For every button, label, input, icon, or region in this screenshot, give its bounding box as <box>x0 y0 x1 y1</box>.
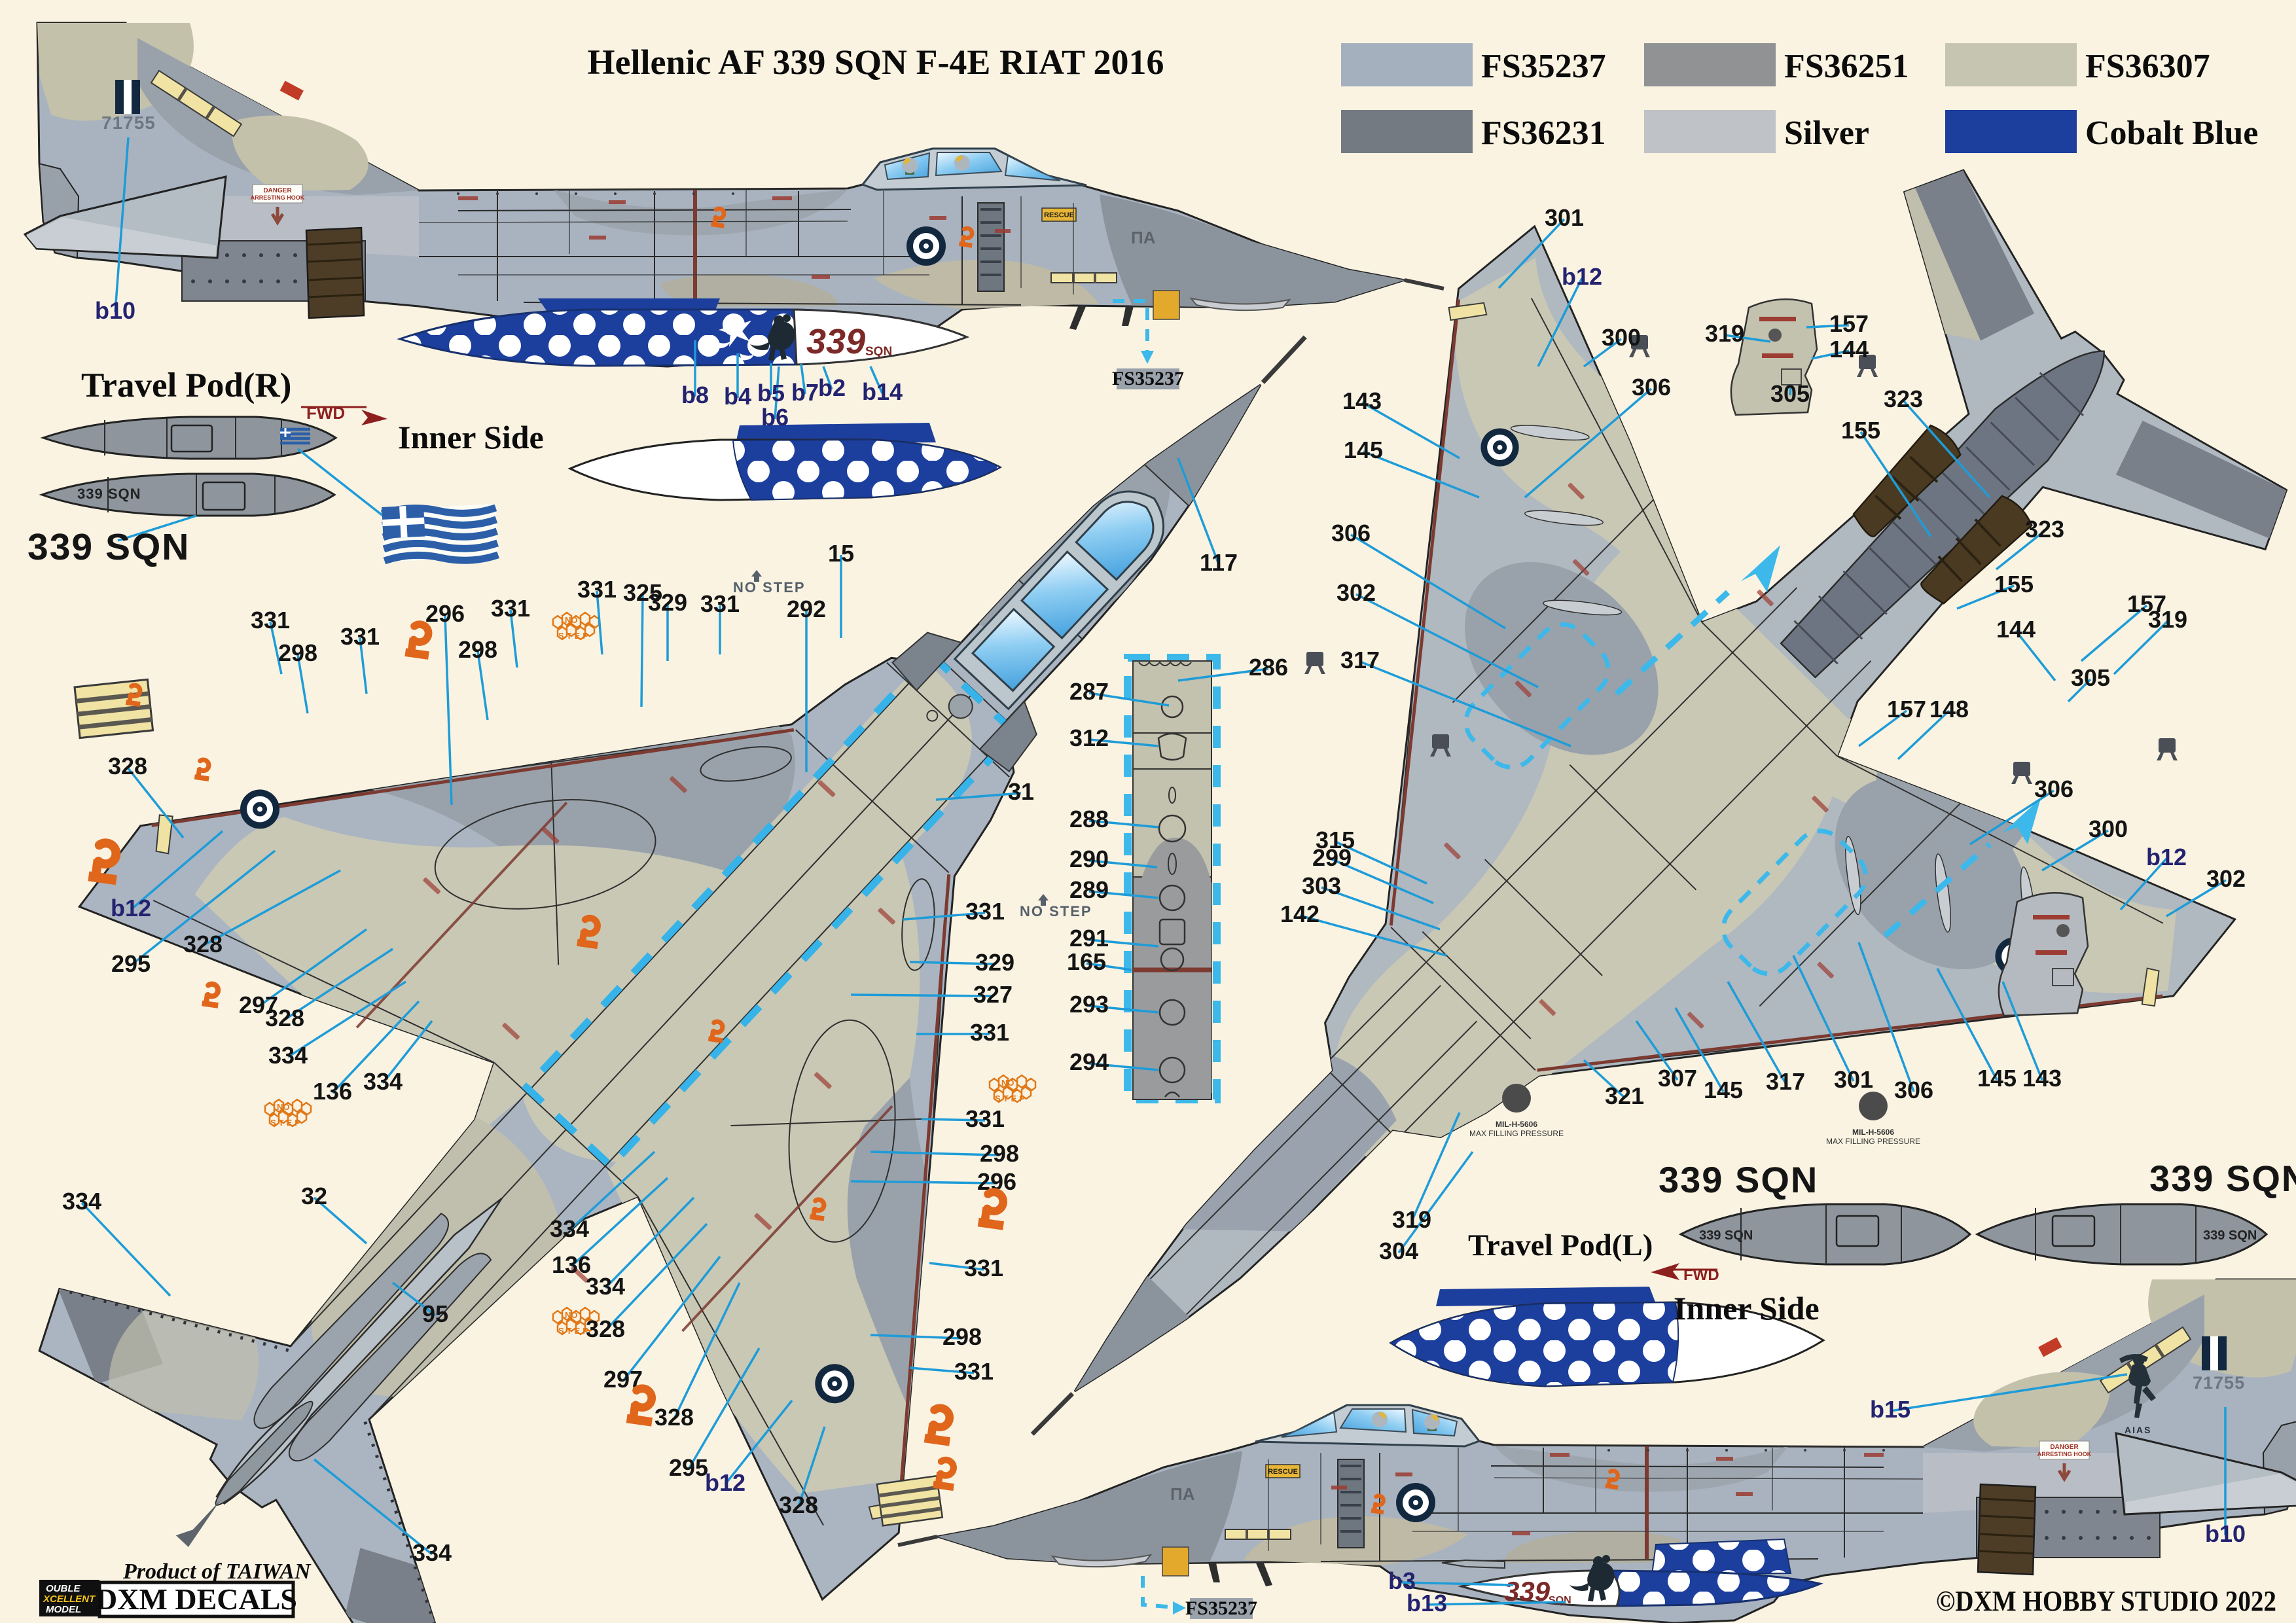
svg-text:295: 295 <box>111 950 151 977</box>
svg-text:334: 334 <box>586 1273 625 1300</box>
svg-text:165: 165 <box>1067 948 1106 975</box>
svg-text:334: 334 <box>412 1539 452 1566</box>
svg-text:328: 328 <box>586 1315 625 1342</box>
svg-text:FWD: FWD <box>1683 1266 1719 1284</box>
svg-text:301: 301 <box>1545 204 1584 231</box>
svg-text:Inner Side: Inner Side <box>1674 1290 1820 1327</box>
svg-text:328: 328 <box>108 753 147 779</box>
svg-text:287: 287 <box>1069 678 1109 705</box>
svg-text:298: 298 <box>942 1323 982 1350</box>
svg-text:328: 328 <box>779 1491 818 1518</box>
svg-text:306: 306 <box>1894 1077 1933 1103</box>
svg-text:MIL-H-5606: MIL-H-5606 <box>1852 1128 1894 1137</box>
svg-text:288: 288 <box>1069 806 1109 832</box>
svg-text:b10: b10 <box>2205 1520 2246 1547</box>
svg-text:DXM DECALS: DXM DECALS <box>96 1582 297 1616</box>
svg-text:331: 331 <box>577 576 617 603</box>
svg-text:71755: 71755 <box>101 113 156 133</box>
svg-text:334: 334 <box>363 1068 403 1095</box>
svg-text:ΠΑ: ΠΑ <box>1170 1484 1195 1504</box>
svg-text:FS36231: FS36231 <box>1481 115 1606 152</box>
svg-text:155: 155 <box>1841 417 1880 444</box>
svg-text:289: 289 <box>1069 876 1109 903</box>
svg-text:306: 306 <box>2034 776 2073 802</box>
svg-text:DANGER: DANGER <box>2050 1444 2079 1451</box>
svg-text:302: 302 <box>2206 865 2246 892</box>
svg-text:b8: b8 <box>681 382 709 408</box>
svg-text:157: 157 <box>1887 696 1926 722</box>
svg-text:312: 312 <box>1069 724 1109 751</box>
svg-text:300: 300 <box>1602 324 1641 351</box>
svg-text:FS35237: FS35237 <box>1112 368 1184 389</box>
svg-text:SQN: SQN <box>865 345 892 359</box>
svg-text:339 SQN: 339 SQN <box>27 526 190 568</box>
svg-text:157: 157 <box>1829 310 1869 337</box>
svg-text:339 SQN: 339 SQN <box>1699 1228 1753 1243</box>
svg-text:305: 305 <box>1770 380 1810 407</box>
svg-text:b2: b2 <box>818 374 846 401</box>
svg-text:OUBLE: OUBLE <box>46 1583 81 1594</box>
svg-text:307: 307 <box>1658 1065 1697 1092</box>
svg-text:RESCUE: RESCUE <box>1268 1468 1298 1476</box>
svg-text:294: 294 <box>1069 1048 1109 1075</box>
svg-text:317: 317 <box>1766 1068 1805 1095</box>
svg-text:Product of TAIWAN: Product of TAIWAN <box>122 1560 312 1584</box>
svg-text:Cobalt Blue: Cobalt Blue <box>2085 115 2258 152</box>
svg-text:b14: b14 <box>862 378 903 405</box>
svg-text:334: 334 <box>550 1215 589 1242</box>
svg-text:300: 300 <box>2089 815 2128 842</box>
svg-text:290: 290 <box>1069 846 1109 872</box>
svg-text:©DXM HOBBY STUDIO 2022: ©DXM HOBBY STUDIO 2022 <box>1936 1585 2276 1617</box>
svg-text:ΠΑ: ΠΑ <box>1131 228 1156 247</box>
svg-text:FS36307: FS36307 <box>2085 48 2210 85</box>
svg-text:MAX FILLING PRESSURE: MAX FILLING PRESSURE <box>1469 1129 1564 1138</box>
svg-text:XCELLENT: XCELLENT <box>43 1594 96 1605</box>
svg-text:331: 331 <box>965 1105 1005 1132</box>
svg-text:AIAS: AIAS <box>2125 1425 2151 1435</box>
svg-text:FS36251: FS36251 <box>1784 48 1909 85</box>
svg-text:331: 331 <box>970 1019 1009 1046</box>
svg-text:331: 331 <box>964 1255 1003 1281</box>
svg-text:b5: b5 <box>757 380 785 406</box>
svg-text:Hellenic AF 339 SQN F-4E RIAT: Hellenic AF 339 SQN F-4E RIAT 2016 <box>587 43 1164 82</box>
svg-text:NO STEP: NO STEP <box>1020 903 1092 919</box>
svg-text:15: 15 <box>828 540 854 567</box>
svg-text:298: 298 <box>980 1140 1019 1167</box>
svg-text:155: 155 <box>1994 571 2034 597</box>
svg-text:b6: b6 <box>761 404 789 431</box>
svg-text:303: 303 <box>1302 872 1341 899</box>
svg-text:317: 317 <box>1340 647 1380 673</box>
svg-text:144: 144 <box>1996 616 2036 643</box>
svg-text:b10: b10 <box>95 297 135 324</box>
svg-text:117: 117 <box>1200 549 1238 576</box>
svg-text:SQN: SQN <box>1549 1595 1571 1606</box>
svg-text:ARRESTING HOOK: ARRESTING HOOK <box>251 194 305 201</box>
svg-text:286: 286 <box>1249 654 1288 681</box>
svg-text:145: 145 <box>1704 1077 1743 1103</box>
svg-text:298: 298 <box>278 639 317 666</box>
svg-text:FWD: FWD <box>306 403 345 423</box>
svg-text:Inner Side: Inner Side <box>398 419 544 455</box>
svg-text:302: 302 <box>1336 579 1376 606</box>
svg-text:b15: b15 <box>1870 1396 1910 1423</box>
svg-text:143: 143 <box>2022 1065 2062 1092</box>
svg-text:b4: b4 <box>724 383 751 410</box>
svg-text:71755: 71755 <box>2193 1373 2245 1393</box>
svg-text:295: 295 <box>669 1454 708 1481</box>
svg-text:b12: b12 <box>111 895 151 921</box>
svg-text:339 SQN: 339 SQN <box>2149 1158 2296 1199</box>
svg-text:299: 299 <box>1312 844 1352 871</box>
svg-text:321: 321 <box>1605 1082 1644 1109</box>
svg-text:306: 306 <box>1331 520 1371 546</box>
svg-text:304: 304 <box>1379 1238 1418 1264</box>
svg-text:DANGER: DANGER <box>263 187 292 194</box>
svg-text:148: 148 <box>1929 696 1969 722</box>
svg-text:145: 145 <box>1344 437 1383 463</box>
svg-text:319: 319 <box>1705 320 1744 347</box>
svg-text:145: 145 <box>1977 1065 2017 1092</box>
svg-text:NO STEP: NO STEP <box>733 579 806 596</box>
svg-text:Travel Pod(L): Travel Pod(L) <box>1468 1228 1653 1262</box>
svg-text:FS35237: FS35237 <box>1185 1597 1257 1619</box>
svg-text:FS35237: FS35237 <box>1481 48 1606 85</box>
svg-text:329: 329 <box>975 949 1014 976</box>
svg-text:31: 31 <box>1008 778 1034 805</box>
svg-text:292: 292 <box>787 596 826 622</box>
svg-text:ARRESTING HOOK: ARRESTING HOOK <box>2037 1451 2092 1457</box>
svg-text:143: 143 <box>1342 387 1382 414</box>
svg-text:328: 328 <box>265 1005 304 1031</box>
svg-text:293: 293 <box>1069 991 1109 1018</box>
svg-text:339 SQN: 339 SQN <box>77 486 141 502</box>
svg-text:323: 323 <box>2025 516 2064 543</box>
svg-text:327: 327 <box>973 981 1013 1008</box>
svg-text:334: 334 <box>268 1042 308 1069</box>
svg-text:MAX FILLING PRESSURE: MAX FILLING PRESSURE <box>1826 1137 1920 1146</box>
svg-text:MIL-H-5606: MIL-H-5606 <box>1496 1120 1537 1129</box>
svg-text:142: 142 <box>1280 901 1319 927</box>
svg-text:136: 136 <box>313 1078 352 1105</box>
svg-text:95: 95 <box>422 1300 448 1327</box>
svg-text:306: 306 <box>1632 374 1671 401</box>
svg-text:291: 291 <box>1069 925 1109 952</box>
svg-text:b12: b12 <box>1562 263 1602 290</box>
svg-text:339: 339 <box>806 322 865 361</box>
svg-text:319: 319 <box>2148 606 2187 633</box>
svg-text:339 SQN: 339 SQN <box>2203 1228 2257 1243</box>
svg-text:331: 331 <box>491 595 530 622</box>
svg-text:328: 328 <box>183 931 223 957</box>
svg-text:331: 331 <box>954 1358 994 1385</box>
svg-text:331: 331 <box>965 898 1005 925</box>
svg-text:b7: b7 <box>791 379 819 406</box>
svg-text:b12: b12 <box>2146 844 2187 870</box>
svg-text:Silver: Silver <box>1784 115 1869 152</box>
svg-text:323: 323 <box>1884 385 1923 412</box>
svg-text:339 SQN: 339 SQN <box>1659 1159 1818 1200</box>
svg-text:144: 144 <box>1829 336 1869 363</box>
svg-text:331: 331 <box>251 607 290 633</box>
svg-text:Travel Pod(R): Travel Pod(R) <box>81 366 291 404</box>
svg-text:296: 296 <box>425 600 465 627</box>
svg-text:b3: b3 <box>1388 1567 1416 1594</box>
svg-text:MODEL: MODEL <box>46 1604 81 1615</box>
svg-text:b12: b12 <box>705 1469 745 1496</box>
svg-text:301: 301 <box>1834 1066 1873 1093</box>
svg-text:329: 329 <box>648 589 687 616</box>
svg-text:334: 334 <box>62 1188 101 1215</box>
svg-text:331: 331 <box>340 623 380 650</box>
svg-text:328: 328 <box>655 1404 694 1431</box>
svg-text:RESCUE: RESCUE <box>1044 211 1074 219</box>
svg-text:32: 32 <box>301 1183 327 1209</box>
svg-text:298: 298 <box>458 636 497 663</box>
svg-text:319: 319 <box>1392 1206 1431 1233</box>
svg-text:305: 305 <box>2071 664 2110 691</box>
